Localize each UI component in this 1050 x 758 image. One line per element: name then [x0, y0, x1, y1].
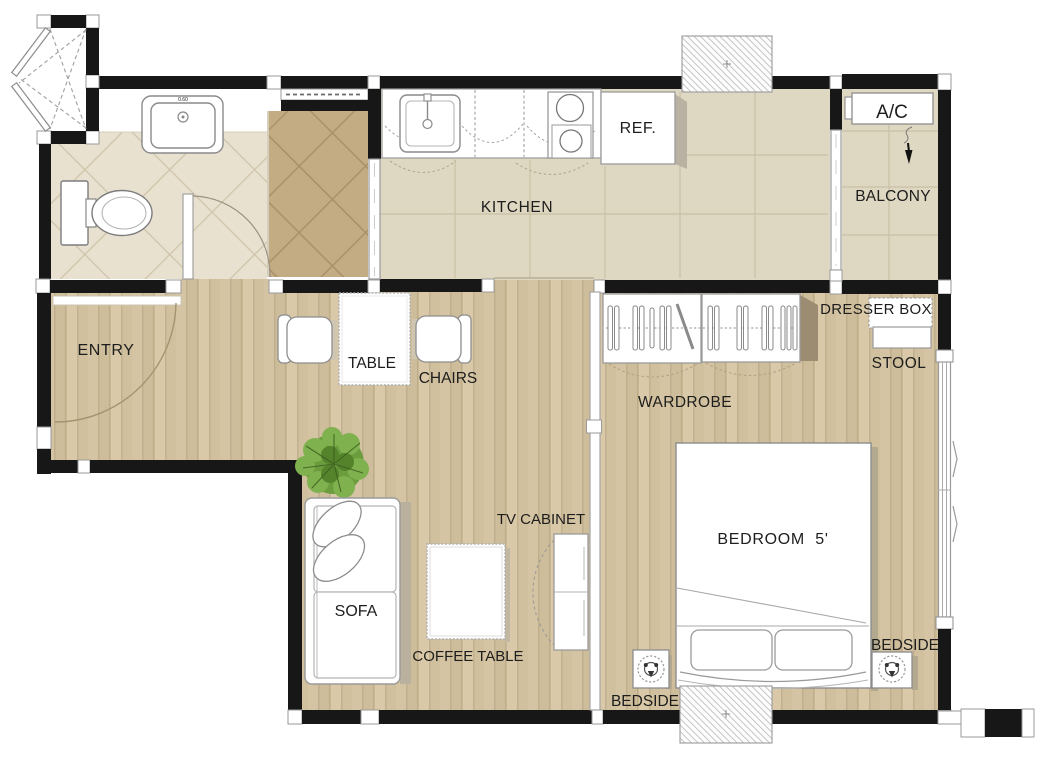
svg-text:TV CABINET: TV CABINET [497, 511, 585, 528]
svg-text:KITCHEN: KITCHEN [481, 199, 553, 216]
svg-text:0.60: 0.60 [178, 97, 188, 103]
svg-text:BEDROOM 5': BEDROOM 5' [717, 531, 828, 548]
svg-text:BALCONY: BALCONY [855, 188, 930, 205]
svg-text:BEDSIDE: BEDSIDE [611, 693, 679, 710]
svg-text:CHAIRS: CHAIRS [419, 370, 478, 387]
svg-text:BEDSIDE: BEDSIDE [871, 637, 939, 654]
svg-text:ENTRY: ENTRY [78, 342, 135, 359]
svg-text:WARDROBE: WARDROBE [638, 394, 732, 411]
svg-text:TABLE: TABLE [348, 355, 396, 372]
svg-text:COFFEE TABLE: COFFEE TABLE [412, 648, 523, 665]
svg-text:SOFA: SOFA [335, 603, 378, 620]
svg-text:DRESSER BOX: DRESSER BOX [820, 301, 932, 318]
svg-text:STOOL: STOOL [872, 355, 927, 372]
svg-text:A/C: A/C [876, 102, 908, 123]
svg-text:REF.: REF. [620, 120, 657, 137]
